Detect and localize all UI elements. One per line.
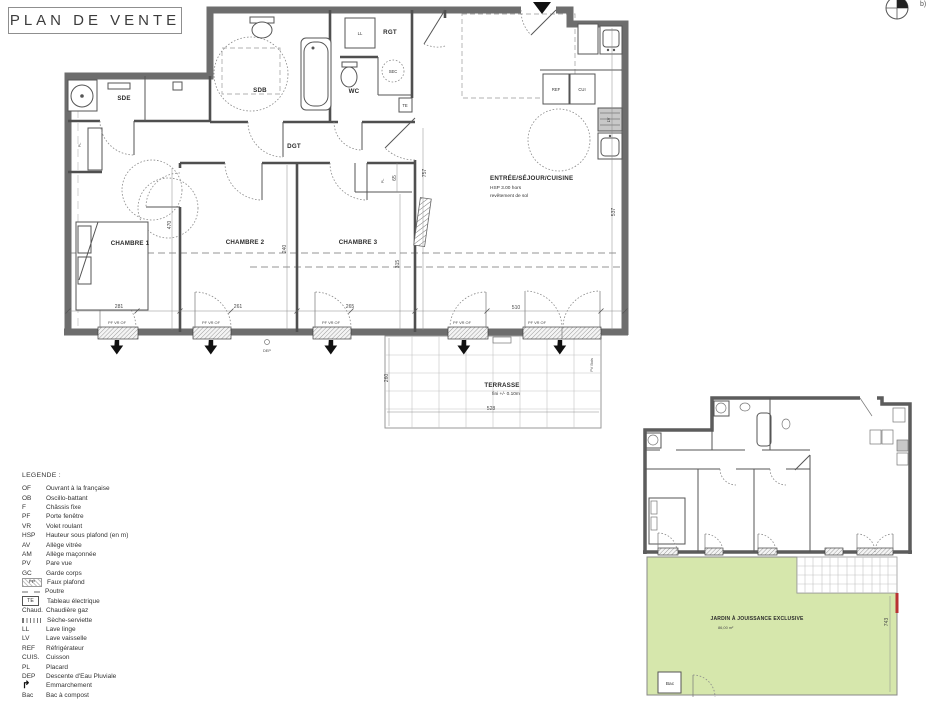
ref-label: REF [552, 87, 561, 92]
legend-label: Allège maçonnée [46, 551, 96, 558]
entrance-arrow [533, 2, 551, 14]
legend-label: Emmarchement [46, 682, 92, 689]
garden-area-value: 86,00 m² [718, 625, 734, 630]
legend-items: OFOuvrant à la françaiseOBOscillo-battan… [22, 484, 212, 700]
legend-abbr: F [22, 504, 46, 511]
key-plan: 743 JARDIN À JOUISSANCE EXCLUSIVE 86,00 … [643, 398, 912, 697]
legend-abbr: OB [22, 495, 46, 502]
dryer-sec: SEC [382, 60, 404, 82]
dashed-guides [70, 14, 620, 330]
legend-label: Châssis fixe [46, 504, 81, 511]
window-label: PF VR OF [108, 320, 127, 325]
room-sde: SDE [117, 95, 130, 102]
legend-abbr: GC [22, 570, 46, 577]
legend: LEGENDE : OFOuvrant à la françaiseOBOsci… [22, 472, 212, 700]
legend-abbr: PL [22, 664, 46, 671]
dim-w4: 510 [512, 305, 521, 311]
terrasse-label: TERRASSE [484, 382, 519, 389]
legend-item: GCGarde corps [22, 569, 212, 578]
legend-item: HSPHauteur sous plafond (en m) [22, 531, 212, 540]
legend-label: Pare vue [46, 560, 72, 567]
closet-chambre1 [88, 128, 102, 170]
room-chambre3: CHAMBRE 3 [339, 239, 378, 246]
room-rgt: RGT [383, 29, 397, 36]
legend-item: AMAllège maçonnée [22, 550, 212, 559]
room-sdb: SDB [253, 87, 267, 94]
pl-label-ch3: PL [380, 178, 385, 184]
te-label: TE [402, 103, 408, 108]
key-terrasse-grid [797, 557, 897, 593]
main-plan: TERRASSE fini +/- 0.10m 260 528 PV Bois [64, 2, 628, 428]
dim-h5: 757 [422, 169, 428, 178]
dim-h6: 537 [611, 208, 617, 217]
dim-h3: 315 [395, 260, 401, 269]
legend-item: PVPare vue [22, 559, 212, 568]
toilet-sdb [250, 17, 274, 38]
turning-circle-hall [122, 160, 182, 220]
compass-note: b) [920, 1, 926, 8]
legend-abbr: AM [22, 551, 46, 558]
legend-abbr: OF [22, 485, 46, 492]
cui-label: CUI [578, 87, 585, 92]
legend-label: Chaudière gaz [46, 607, 88, 614]
legend-item: TETableau électrique [22, 597, 212, 606]
legend-item: PLPlacard [22, 662, 212, 671]
legend-abbr: LL [22, 626, 46, 633]
dep-label: DEP [263, 348, 271, 353]
legend-abbr: CUIS. [22, 654, 46, 661]
terrasse-area: TERRASSE fini +/- 0.10m 260 528 PV Bois [384, 336, 601, 428]
garden-dim: 743 [884, 618, 890, 627]
legend-item: Poutre [22, 587, 212, 596]
turning-circle-sejour [528, 109, 590, 171]
legend-label: Réfrigérateur [46, 645, 84, 652]
legend-abbr: HSP [22, 532, 46, 539]
garden-title: JARDIN À JOUISSANCE EXCLUSIVE [710, 615, 804, 622]
ll-label: LL [358, 31, 363, 36]
window-label: PF VR OF [322, 320, 341, 325]
legend-label: Tableau électrique [47, 598, 100, 605]
legend-label: Lave linge [46, 626, 76, 633]
legend-abbr: DEP [22, 673, 46, 680]
radiator [414, 198, 432, 247]
dash-symbol [22, 591, 40, 593]
legend-label: Porte fenêtre [46, 513, 84, 520]
dim-w1: 281 [115, 304, 124, 310]
room-chambre1: CHAMBRE 1 [111, 240, 150, 247]
terrasse-note: fini +/- 0.10m [492, 391, 520, 397]
legend-item: LVLave vaisselle [22, 634, 212, 643]
legend-item: FPFaux plafond [22, 578, 212, 587]
legend-item: PFPorte fenêtre [22, 512, 212, 521]
room-sejour-note: revêtement de sol [490, 193, 528, 199]
kitchen-units: REF CUI LV [540, 24, 622, 159]
legend-item: Sèche-serviette [22, 615, 212, 624]
compost-bin: Bac [658, 672, 681, 693]
dim-h1: 470 [167, 221, 173, 230]
legend-item: Chaud.Chaudière gaz [22, 606, 212, 615]
toilet-wc [341, 62, 357, 87]
dim-terrasse-height: 260 [384, 374, 390, 383]
dim-h2: 240 [282, 245, 288, 254]
legend-item: VRVolet roulant [22, 522, 212, 531]
room-dgt: DGT [287, 143, 301, 150]
dim-w2: 261 [234, 304, 243, 310]
fixtures: LL SEC REF CUI [68, 17, 622, 353]
legend-label: Descente d'Eau Pluviale [46, 673, 116, 680]
fp-symbol: FP [22, 578, 42, 587]
legend-label: Garde corps [46, 570, 82, 577]
key-plan-walls [643, 398, 912, 555]
arrow-symbol [22, 680, 46, 691]
legend-abbr: PV [22, 560, 46, 567]
legend-item: AVAllège vitrée [22, 540, 212, 549]
key-plan-interior [645, 398, 908, 552]
te-symbol: TE [22, 596, 39, 606]
window-label: PF VR OF [453, 320, 472, 325]
legend-abbr: Chaud. [22, 607, 46, 614]
legend-label: Allège vitrée [46, 542, 82, 549]
legend-label: Ouvrant à la française [46, 485, 110, 492]
legend-item: OBOscillo-battant [22, 493, 212, 502]
washer-ll: LL [345, 18, 375, 48]
legend-item: BacBac à compost [22, 691, 212, 700]
legend-label: Poutre [45, 588, 64, 595]
legend-item: FChâssis fixe [22, 503, 212, 512]
bac-label: Bac [666, 681, 675, 687]
legend-abbr: VR [22, 523, 46, 530]
lv-label: LV [606, 117, 611, 122]
legend-abbr: REF [22, 645, 46, 652]
bathtub [301, 38, 331, 110]
floor-plan-page: PLAN DE VENTE TERRASSE [0, 0, 940, 705]
north-arrow-icon: b) [886, 0, 926, 19]
window-label: PF VR OF [202, 320, 221, 325]
room-sejour: ENTRÉE/SÉJOUR/CUISINE [490, 174, 573, 182]
room-wc: WC [349, 88, 360, 95]
seche-symbol [22, 618, 41, 623]
window-label: PF VR OF [528, 320, 547, 325]
dim-w3: 265 [346, 304, 355, 310]
legend-label: Faux plafond [47, 579, 85, 586]
legend-abbr: Bac [22, 692, 46, 699]
dim-h4: 65 [392, 175, 398, 181]
legend-label: Sèche-serviette [47, 617, 92, 624]
legend-label: Cuisson [46, 654, 69, 661]
pv-bois-label: PV Bois [589, 358, 594, 372]
room-sejour-hsp: HSP 3.00 hors [490, 185, 522, 191]
legend-abbr: PF [22, 513, 46, 520]
shower-sde [68, 80, 97, 111]
dim-terrasse-width: 528 [487, 406, 496, 412]
legend-item: LLLave linge [22, 625, 212, 634]
legend-label: Placard [46, 664, 68, 671]
room-chambre2: CHAMBRE 2 [226, 239, 265, 246]
legend-item: Emmarchement [22, 681, 212, 690]
legend-abbr: LV [22, 635, 46, 642]
sec-label: SEC [389, 69, 398, 74]
legend-label: Bac à compost [46, 692, 89, 699]
pl-label-sde: PL [77, 142, 82, 148]
legend-item: CUIS.Cuisson [22, 653, 212, 662]
legend-title: LEGENDE : [22, 472, 212, 479]
legend-item: REFRéfrigérateur [22, 644, 212, 653]
legend-label: Oscillo-battant [46, 495, 88, 502]
external-walls [64, 10, 628, 335]
legend-label: Hauteur sous plafond (en m) [46, 532, 128, 539]
legend-label: Lave vaisselle [46, 635, 87, 642]
legend-item: DEPDescente d'Eau Pluviale [22, 672, 212, 681]
legend-label: Volet roulant [46, 523, 82, 530]
bed-chambre1 [76, 222, 148, 310]
legend-item: OFOuvrant à la française [22, 484, 212, 493]
dep-marker: DEP [263, 340, 271, 354]
legend-abbr: AV [22, 542, 46, 549]
